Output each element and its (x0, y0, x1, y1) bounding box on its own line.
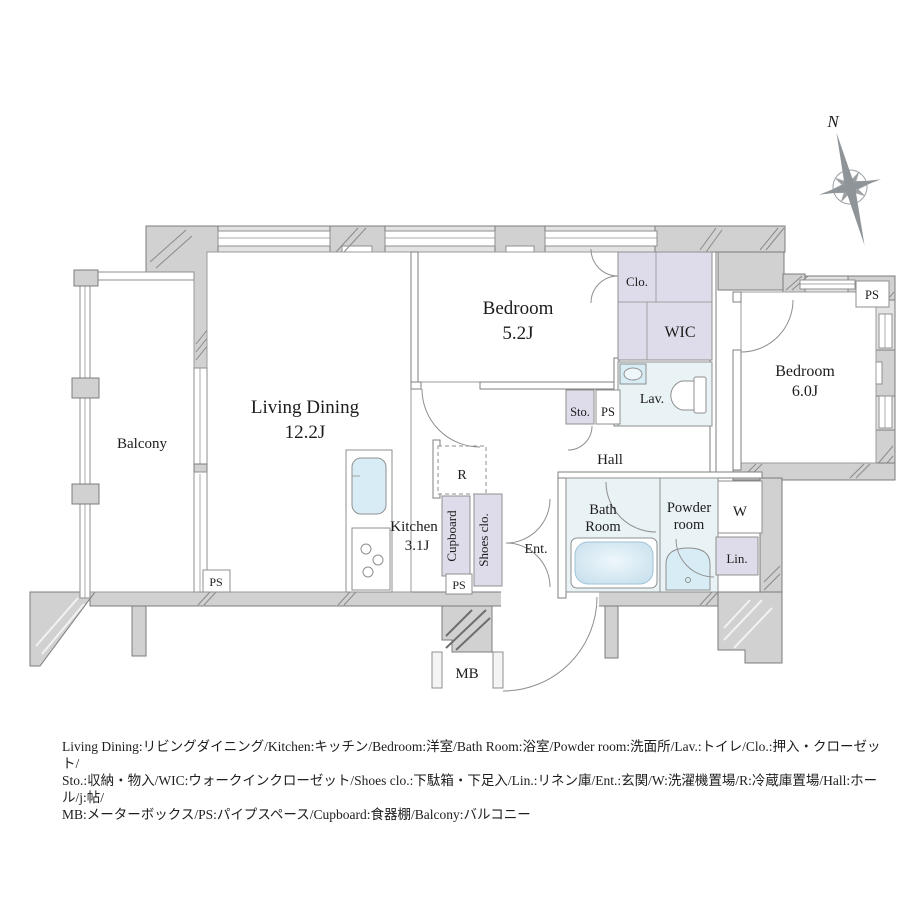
label-kitchen: Kitchen (390, 519, 438, 535)
label-washer: W (733, 504, 748, 520)
label-closet: Clo. (626, 274, 648, 289)
label-shoes-closet: Shoes clo. (476, 513, 491, 566)
legend-line-2: Sto.:収納・物入/WIC:ウォークインクローゼット/Shoes clo.:下… (62, 772, 882, 806)
label-living-dining-area: 12.2J (285, 422, 326, 443)
legend-line-3: MB:メーターボックス/PS:パイプスペース/Cupboard:食器棚/Balc… (62, 806, 882, 823)
compass-rose: N (805, 112, 895, 253)
toilet-tank (694, 377, 706, 413)
burner (373, 555, 383, 565)
label-hall: Hall (597, 452, 623, 468)
stove (352, 528, 390, 590)
label-ps-mid: PS (601, 405, 615, 419)
label-bedroom-large-area: 6.0J (792, 383, 818, 400)
label-bedroom-small: Bedroom (483, 298, 554, 319)
label-balcony: Balcony (117, 436, 167, 452)
legend-line-1: Living Dining:リビングダイニング/Kitchen:キッチン/Bed… (62, 738, 882, 772)
label-ps-bottom: PS (452, 578, 465, 592)
kitchen-sink (352, 458, 386, 514)
label-kitchen-area: 3.1J (405, 538, 430, 554)
storage-door (568, 426, 592, 450)
floor-plan-page: N Balcony Living Dining 12.2J Kitchen 3.… (0, 0, 920, 920)
legend: Living Dining:リビングダイニング/Kitchen:キッチン/Bed… (62, 738, 882, 823)
closet-wic-block (618, 252, 712, 360)
label-entrance: Ent. (525, 542, 548, 557)
burner (363, 567, 373, 577)
label-cupboard: Cupboard (444, 510, 459, 562)
label-powder-2: room (674, 517, 705, 533)
label-linen: Lin. (726, 551, 747, 566)
burner (361, 544, 371, 554)
label-powder-1: Powder (667, 500, 711, 516)
label-ps-left: PS (209, 575, 222, 589)
bathtub-inner (575, 542, 653, 584)
north-label: N (826, 112, 840, 131)
label-living-dining: Living Dining (251, 397, 360, 418)
shoes-closet-door-upper (506, 499, 550, 543)
label-bedroom-large: Bedroom (775, 363, 835, 380)
label-meter-box: MB (455, 666, 478, 682)
label-bath-1: Bath (589, 502, 617, 518)
label-refrigerator: R (457, 468, 467, 483)
label-bedroom-small-area: 5.2J (502, 323, 533, 344)
toilet-bowl (671, 381, 694, 410)
label-wic: WIC (664, 324, 695, 341)
label-ps-top: PS (865, 288, 879, 302)
bedroom-small-door (422, 389, 480, 447)
label-lavatory: Lav. (640, 392, 664, 407)
label-bath-2: Room (585, 519, 621, 535)
powder-sink (666, 548, 710, 590)
entrance-door (503, 597, 597, 691)
label-storage: Sto. (570, 405, 590, 419)
